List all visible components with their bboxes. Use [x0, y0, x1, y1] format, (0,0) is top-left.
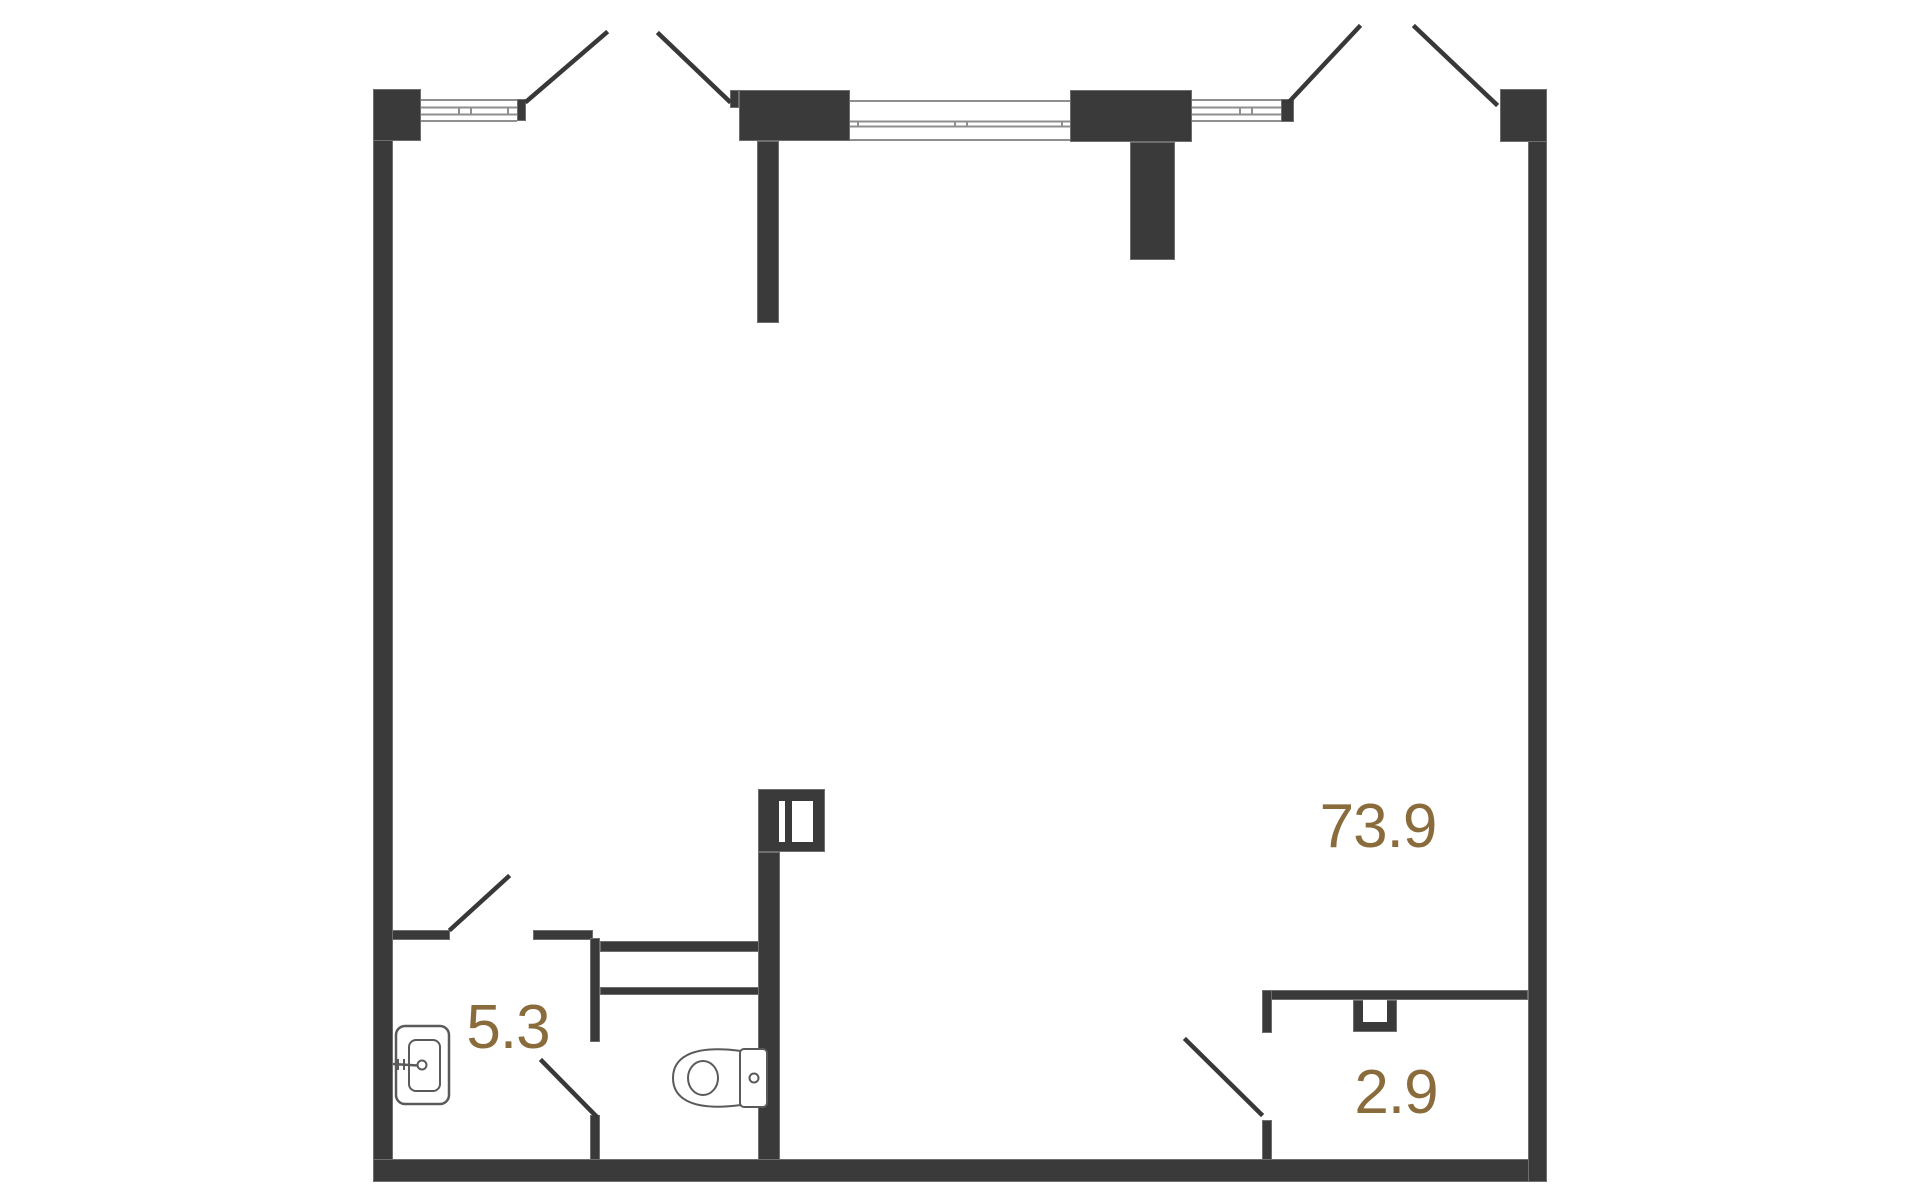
window-top-left: [421, 100, 517, 121]
toilet-icon: [673, 1049, 767, 1107]
area-label-closet: 2.9: [1354, 1062, 1437, 1124]
area-label-main-room: 73.9: [1320, 796, 1437, 858]
door-swing-wc: [542, 1061, 596, 1116]
sink-icon: [393, 1026, 449, 1104]
plan-overlay: [0, 0, 1920, 1200]
floor-plan: 73.9 5.3 2.9: [0, 0, 1920, 1200]
door-swing-balcony-right: [1289, 27, 1496, 104]
window-top-right: [1192, 100, 1281, 121]
window-top-center: [850, 101, 1070, 140]
door-swing-balcony-left: [527, 33, 729, 101]
area-label-bathroom: 5.3: [466, 997, 549, 1059]
door-swing-closet: [1186, 1040, 1261, 1114]
door-swing-bathroom: [451, 877, 508, 929]
